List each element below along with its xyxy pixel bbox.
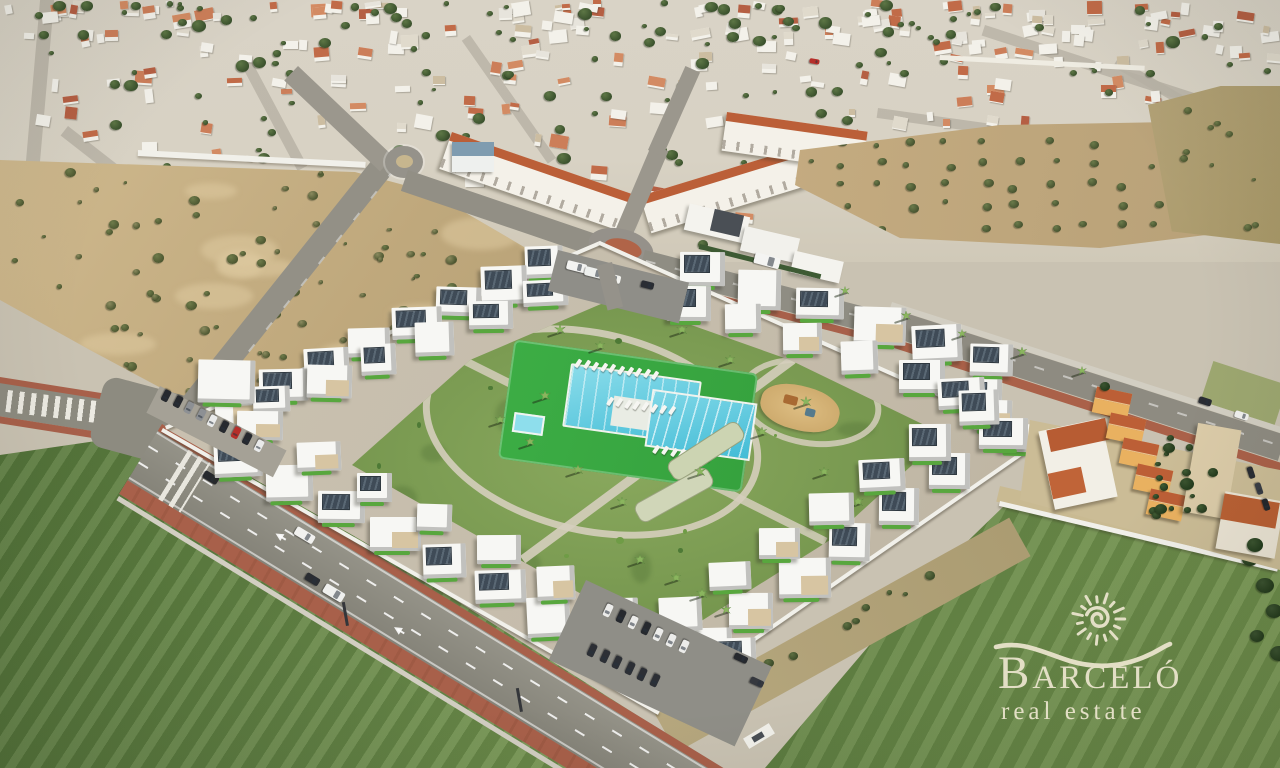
roof-terrace [875,323,903,342]
tree-icon [17,318,27,327]
townhouse-roof [1122,438,1160,457]
tree-icon [1035,24,1043,31]
tree-icon [832,87,843,96]
town-roof [508,60,524,69]
town-house [350,103,366,111]
solar-panels [528,249,552,266]
town-house [985,13,995,19]
tree-icon [979,158,988,165]
tree-icon [1210,163,1214,167]
town-house [832,32,851,46]
roof-terrace [801,576,828,596]
tree-icon [642,24,647,28]
tree-icon [1182,469,1191,476]
town-roof [1170,12,1179,18]
tree-icon [1183,149,1190,155]
tree-icon [124,362,130,367]
town-roof [1088,19,1105,25]
tree-icon [906,138,915,146]
apartment-building [360,343,397,375]
tree-icon [192,20,206,32]
town-roof [63,95,79,103]
sun-ray [1078,629,1085,634]
sun-ray [1077,623,1082,624]
town-roof [350,103,366,109]
town-roof [591,165,608,174]
town-house [144,89,153,104]
solar-panels [799,291,828,307]
brand-name: BARCELÓ [998,650,1182,701]
tree-icon [133,269,140,275]
tree-icon [273,50,281,56]
town-house [541,20,552,30]
tree-icon [555,125,565,134]
town-roof [989,91,1005,103]
tree-icon [943,199,948,203]
apartment-building [729,593,774,630]
tree-icon [319,280,323,283]
town-roof [331,75,346,81]
town-roof [444,24,455,31]
car-windshield [233,433,238,437]
tree-icon [268,129,276,136]
tree-icon [610,31,621,40]
town-house [395,86,410,93]
solar-panels [484,270,512,290]
town-house [705,115,723,127]
tree-icon [729,18,741,29]
town-roof [948,0,963,12]
town-house [956,96,972,107]
town-house [433,76,445,85]
tree-icon [56,373,60,377]
tree-icon [133,222,140,228]
car-windshield [163,395,168,399]
tree-icon [378,257,383,261]
car-windshield [1264,505,1269,509]
car-windshield [577,264,583,272]
town-house [269,1,277,11]
tree-icon [360,293,366,298]
roof-terrace [392,532,419,548]
car-windshield [643,628,648,632]
town-house [948,0,963,13]
tree-icon [132,70,137,74]
tree-icon [262,351,270,358]
town-roof [958,66,969,75]
tree-icon [1088,178,1097,186]
town-house [143,67,156,78]
tree-icon [1184,507,1190,512]
solar-panels [683,255,710,272]
park-bush [564,554,569,558]
tree-icon [122,10,128,15]
tree-icon [106,301,116,309]
town-house [510,103,520,111]
tree-icon [1214,23,1222,30]
tree-icon [281,41,285,45]
town-house [994,78,1011,91]
solar-panels [862,462,890,480]
roof-terrace [799,336,819,351]
tree-icon [983,203,992,211]
town-roof [738,5,751,14]
apartment-building [357,473,392,502]
tree-icon [984,179,994,187]
town-house [665,33,677,40]
tree-icon [544,91,555,101]
tree-icon [436,130,449,141]
tree-icon [1046,137,1054,144]
sun-ray [1073,613,1083,615]
tree-icon [862,604,870,611]
tree-icon [178,19,186,26]
town-house [120,0,129,8]
roof-terrace [553,581,574,598]
tree-icon [982,225,990,232]
apartment-building [252,385,290,412]
tree-icon [727,32,739,42]
car-windshield [647,283,651,289]
tree-icon [421,252,426,256]
tree-icon [382,245,389,251]
tree-icon [391,13,402,22]
town-house [64,107,77,121]
tree-icon [898,22,904,27]
town-house [802,6,818,18]
tree-icon [414,274,420,279]
tree-icon [1266,604,1280,618]
car-windshield [740,656,745,662]
apartment-building [853,306,906,345]
town-roof [943,119,950,126]
town-house [464,96,476,106]
town-house [1087,1,1103,15]
tree-icon [874,180,880,185]
hedge [427,577,457,582]
town-house [590,165,607,180]
apartment-building [370,517,421,551]
tree-icon [280,354,287,360]
apartment-building [708,561,751,590]
flower-bush [616,537,624,544]
car-windshield [256,445,261,449]
town-roof [1266,54,1280,63]
town-roof [952,38,963,45]
tree-icon [1186,444,1193,450]
car-windshield [614,662,619,666]
tree-icon [422,32,429,38]
town-house [1139,39,1150,49]
tree-icon [341,22,350,29]
tree-icon [1150,221,1157,227]
brand-subtitle: real estate [1001,698,1146,726]
sand-patch [80,333,156,355]
solar-panels [903,363,930,380]
tree-icon [696,58,708,68]
town-roof [1238,53,1250,59]
tree-icon [203,120,208,124]
tree-icon [1135,6,1146,15]
apartment-building [969,343,1012,376]
town-house [1074,34,1085,46]
tree-icon [837,163,844,169]
tree-icon [1014,221,1023,229]
tree-icon [579,8,592,19]
tree-icon [1119,202,1128,210]
apartment-building [783,323,822,354]
tree-icon [444,1,449,5]
tree-icon [46,354,52,359]
tree-icon [387,228,391,232]
tree-icon [319,171,323,174]
tree-icon [308,191,318,200]
tree-icon [792,25,800,32]
town-roof [987,115,999,124]
tree-icon [789,652,798,660]
roundabout-island [396,155,413,168]
tree-icon [282,186,288,191]
apartment-building [840,341,878,375]
solar-panels [915,328,945,348]
car-windshield [1241,413,1245,419]
solar-panels [360,476,381,491]
car-windshield [639,674,644,678]
apartment-building [417,504,452,532]
sand-patch [201,235,279,265]
hedge [786,353,813,357]
hedge [912,461,941,465]
tree-icon [1202,34,1208,39]
solar-panels [912,428,937,447]
tree-icon [878,158,887,165]
tree-icon [1070,70,1077,76]
apartment-building [911,324,962,363]
car-windshield [655,634,660,638]
town-roof [433,76,445,84]
hedge [322,522,355,526]
tree-icon [64,375,72,382]
tree-icon [446,256,456,264]
car-windshield [198,414,203,418]
tree-icon [351,3,360,10]
town-roof [120,0,129,8]
tree-icon [903,592,908,597]
brand-watermark: BARCELÓ real estate [988,590,1203,750]
town-roof [994,47,1007,55]
sun-ray [1082,606,1086,609]
tree-icon [906,183,916,191]
apartment-building [809,493,855,526]
car-windshield [630,622,635,626]
tree-icon [78,30,89,39]
tree-icon [505,71,514,78]
tree-icon [809,159,814,163]
tree-icon [845,203,852,209]
park-bush [678,548,684,553]
tree-icon [236,60,249,71]
tree-icon [1,341,6,345]
tree-icon [12,258,18,263]
hedge [963,424,991,429]
hedge [728,333,754,337]
tree-icon [1100,382,1110,391]
tree-icon [974,9,981,15]
solar-panels [478,573,508,591]
town-house [958,66,969,79]
tree-icon [705,2,718,13]
tree-icon [874,143,879,148]
town-house [499,7,512,19]
town-roof [893,116,909,131]
tree-icon [1252,178,1256,182]
tree-icon [875,48,886,58]
town-roof [985,13,995,16]
tree-icon [256,236,265,244]
town-roof [536,50,550,57]
town-house [105,30,118,41]
roof-terrace [776,541,797,556]
car-windshield [767,257,775,267]
sun-ray [1114,608,1123,612]
tree-icon [1208,125,1214,130]
roof-terrace [256,423,280,437]
tree-icon [1197,504,1207,512]
kids-pool [512,412,545,436]
tree-icon [843,622,853,630]
apartment-building [779,558,831,599]
town-roof [562,4,570,8]
town-house [943,119,950,128]
sun-ray [1114,626,1119,628]
town-house [738,5,751,19]
tree-icon [856,62,863,68]
tree-icon [1167,435,1174,441]
car-windshield [1257,489,1262,493]
town-roof [1236,11,1254,22]
car-windshield [681,646,686,650]
tree-icon [1149,164,1155,169]
town-house [357,47,373,60]
town-roof [666,33,678,38]
tree-icon [903,162,909,167]
town-house [951,38,962,46]
tree-icon [776,5,784,12]
tree-icon [30,353,33,356]
tree-icon [1090,160,1099,168]
tree-icon [783,17,794,26]
town-house [82,130,98,142]
tree-icon [1118,220,1127,228]
town-house [313,46,329,61]
car-windshield [602,656,607,660]
roof-terrace [748,609,771,627]
tree-icon [273,206,277,209]
town-house [200,42,213,52]
apartment-building [759,528,800,560]
town-roof [1002,4,1012,14]
town-house [24,33,34,40]
town-roof [1044,15,1053,24]
town-house [613,53,623,66]
town-roof [762,64,776,69]
tree-icon [81,1,93,11]
town-house [444,24,456,36]
roof-terrace [325,379,349,395]
town-house [762,64,776,73]
tree-icon [940,138,946,143]
tree-icon [1092,69,1096,73]
hedge [762,559,791,563]
hedge [419,530,443,535]
tree-icon [256,148,261,152]
town-house [331,0,343,12]
tree-icon [1008,185,1016,192]
tree-icon [718,4,730,15]
blue-roof [452,142,494,156]
tree-icon [909,204,919,212]
town-house [784,32,793,45]
tree-icon [1180,478,1194,490]
play-equipment [804,408,816,418]
town-roof [802,6,818,17]
car-windshield [668,640,673,644]
town-house [1062,31,1071,43]
apartment-building [795,288,844,320]
hedge [270,501,303,506]
car-windshield [1205,399,1209,405]
tree-icon [74,356,80,361]
roof-terrace [315,454,338,469]
tree-icon [204,291,210,296]
town-house [490,62,502,77]
tree-icon [272,61,278,66]
town-house [515,24,532,37]
sun-ray [1110,602,1114,606]
grass-mottle [631,552,651,583]
apartment-building [474,570,526,604]
apartment-building [536,566,576,602]
tree-icon [1252,222,1259,228]
town-roof [784,32,793,39]
town-roof [549,134,569,150]
town-roof [1087,1,1103,14]
town-house [548,29,567,44]
town-house [41,11,58,23]
play-equipment [783,394,799,406]
car-windshield [175,402,180,406]
flower-bush [417,422,421,428]
tree-icon [38,338,46,345]
hedge [375,551,411,555]
tree-icon [78,200,83,204]
tree-icon [250,15,257,21]
apartment-building [414,322,454,357]
apartment-building [468,301,513,330]
tree-icon [1247,538,1263,552]
town-house [1044,15,1053,25]
apartment-building [306,364,352,398]
apartment-building [422,543,466,578]
tree-icon [214,325,220,330]
tree-icon [187,357,193,362]
tree-icon [189,196,200,205]
tree-icon [592,111,598,116]
tree-icon [1155,462,1160,467]
apartment-building [909,424,951,461]
tree-icon [275,249,280,253]
town-roof [510,103,519,108]
